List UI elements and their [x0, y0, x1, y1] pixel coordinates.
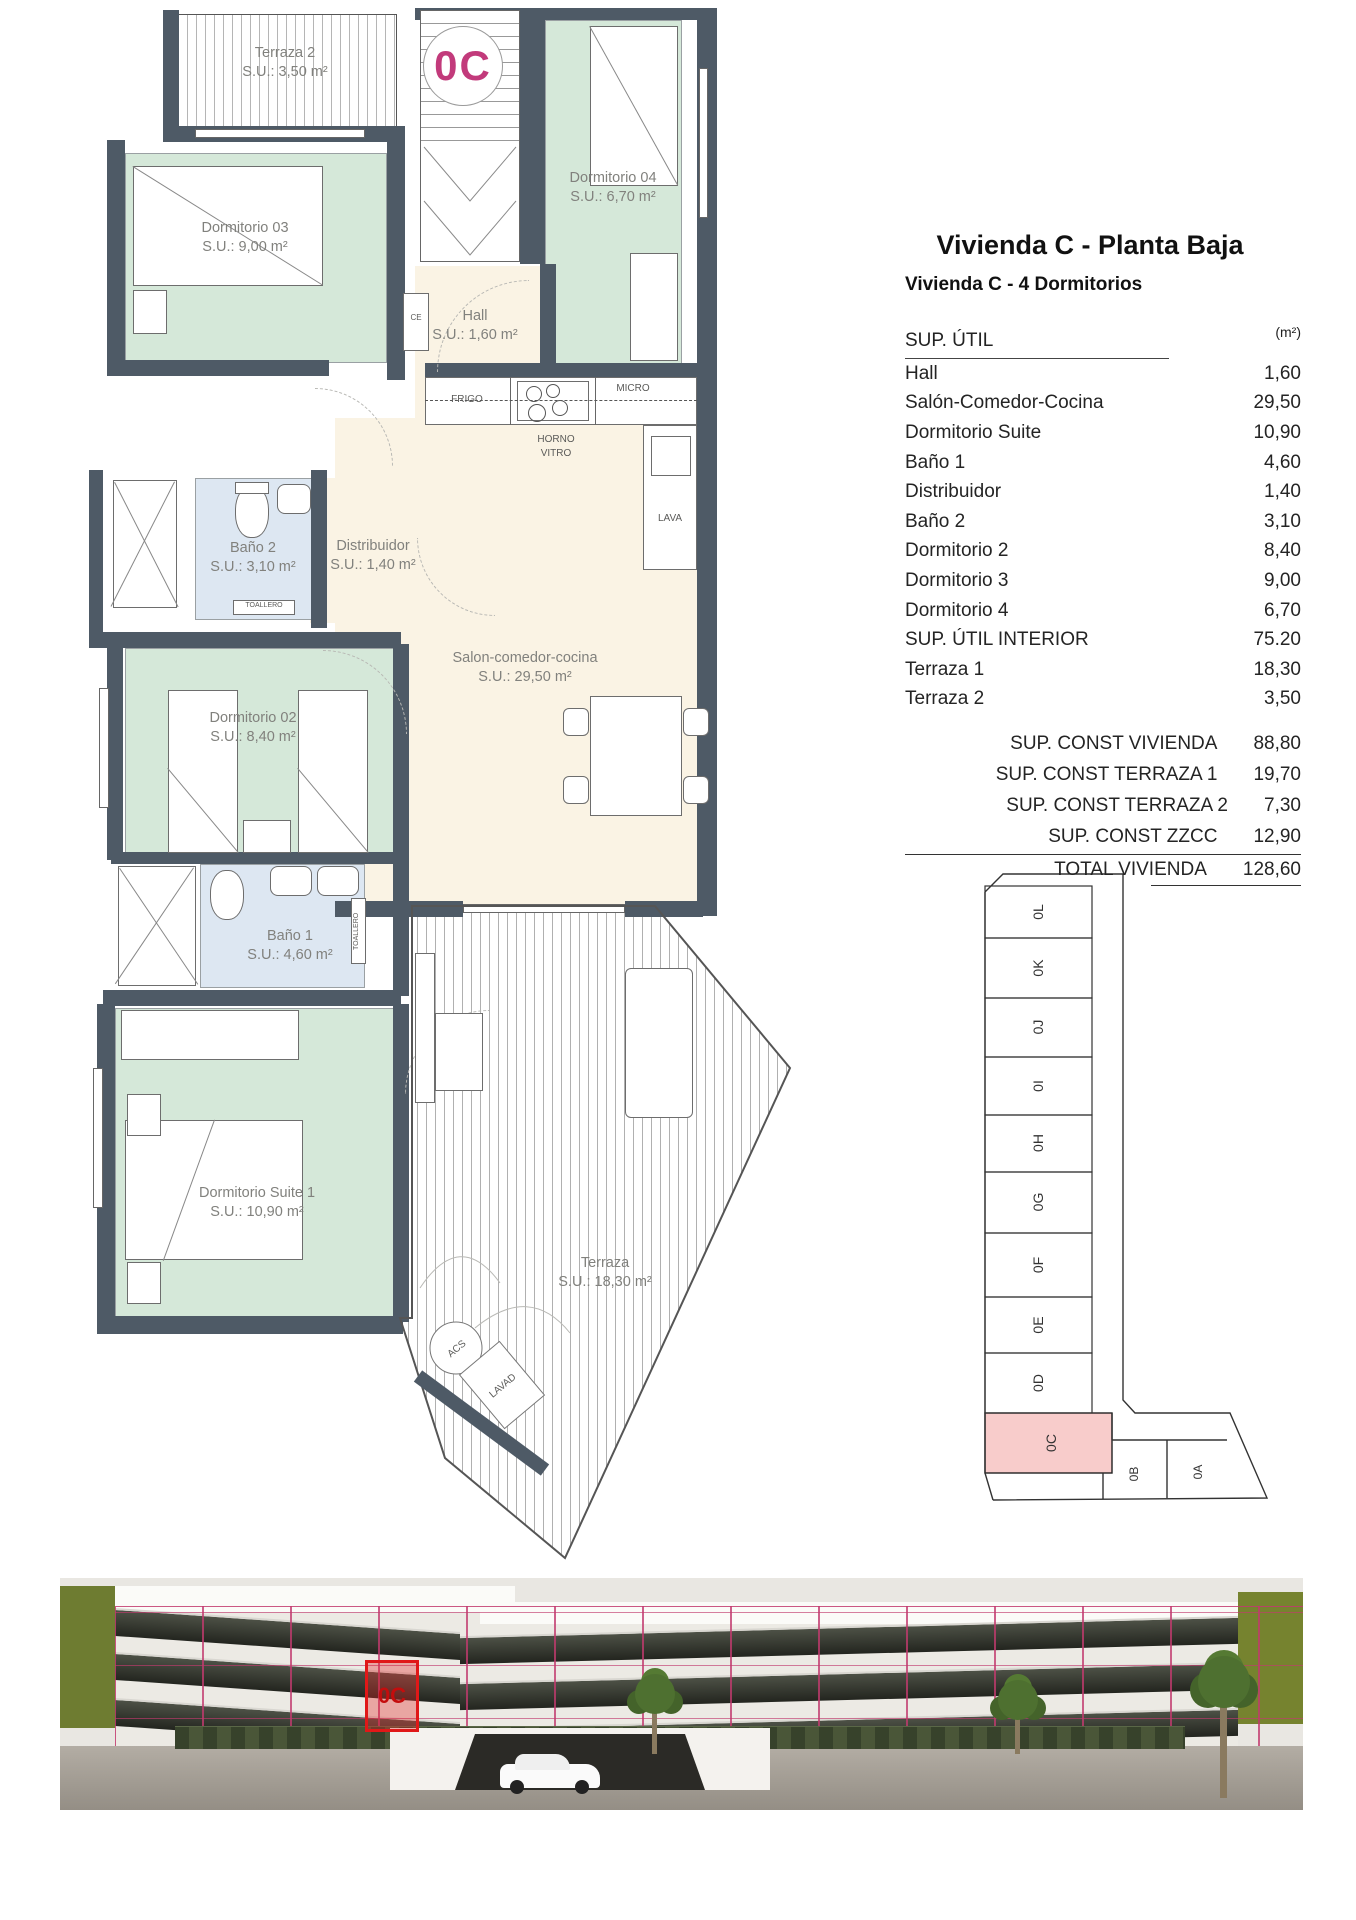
room-name: Dormitorio Suite 1 [199, 1184, 315, 1203]
bed [298, 690, 368, 853]
key-plan-outline [985, 874, 1267, 1500]
room-area: S.U.: 1,40 m² [330, 556, 415, 575]
dining-table [590, 696, 682, 816]
room-label: Hall S.U.: 1,60 m² [432, 307, 517, 345]
wall [163, 10, 179, 136]
page-title: Vivienda C - Planta Baja [880, 230, 1300, 261]
room-area: S.U.: 8,40 m² [209, 728, 296, 747]
room-area: S.U.: 18,30 m² [558, 1273, 651, 1292]
room-label: Terraza S.U.: 18,30 m² [558, 1254, 651, 1292]
summary-row: SUP. CONST TERRAZA 119,70 [905, 759, 1301, 790]
key-plan: 0L 0K 0J 0I 0H 0G 0F 0E 0D 0C 0B 0A [975, 862, 1305, 1522]
chair [683, 708, 709, 736]
row-value: 29,50 [1253, 392, 1301, 414]
room-name: Baño 1 [247, 927, 332, 946]
row-value: 8,40 [1264, 540, 1301, 562]
table-unit: (m²) [1275, 324, 1301, 340]
room-name: Dormitorio 02 [209, 709, 296, 728]
sink [270, 866, 312, 896]
pillow [127, 1094, 161, 1136]
room-name: Terraza 2 [242, 44, 327, 63]
table-row: Dormitorio Suite10,90 [905, 418, 1301, 448]
key-unit-label: 0E [1030, 1316, 1046, 1333]
room-label: Terraza 2 S.U.: 3,50 m² [242, 44, 327, 82]
room-area: S.U.: 4,60 m² [247, 946, 332, 965]
floor-plan: ACS LAVAD [85, 8, 900, 1578]
building-render-photo: 0C [60, 1578, 1303, 1810]
burner [546, 384, 560, 398]
wall [111, 852, 399, 864]
sink [277, 484, 311, 514]
closet-label: CE [403, 313, 429, 322]
key-unit-label: 0I [1030, 1080, 1046, 1092]
row-label: Terraza 1 [905, 659, 984, 681]
table-row: Baño 23,10 [905, 507, 1301, 537]
chair [563, 708, 589, 736]
row-value: 1,60 [1264, 363, 1301, 385]
room-label: Dormitorio 03 S.U.: 9,00 m² [201, 219, 288, 257]
row-value: 3,10 [1264, 511, 1301, 533]
area-table: SUP. ÚTIL (m²) Hall1,60 Salón-Comedor-Co… [905, 330, 1301, 886]
kitchen-divider [595, 377, 596, 425]
room-area: S.U.: 3,50 m² [242, 63, 327, 82]
row-label: Dormitorio 4 [905, 600, 1008, 622]
palm-tree-crown [635, 1674, 675, 1714]
row-value: 18,30 [1253, 659, 1301, 681]
total-value-rule [1151, 885, 1301, 886]
wall [540, 264, 556, 376]
area-table-header: SUP. ÚTIL (m²) [905, 330, 1301, 358]
wardrobe [121, 1010, 299, 1060]
burner [552, 400, 568, 416]
total-label: TOTAL VIVIENDA [1054, 859, 1207, 881]
row-label: Dormitorio Suite [905, 422, 1041, 444]
palm-tree-crown [998, 1680, 1038, 1720]
key-unit-label: 0A [1191, 1465, 1205, 1480]
unit-badge-label: 0C [434, 42, 492, 90]
key-unit-label: 0F [1030, 1257, 1046, 1273]
unit-badge: 0C [423, 26, 503, 106]
key-unit-label: 0G [1030, 1193, 1046, 1212]
row-label: Hall [905, 363, 938, 385]
hall-closet [403, 293, 429, 351]
summary-row: SUP. CONST TERRAZA 27,30 [905, 790, 1301, 821]
highlighted-unit-box: 0C [365, 1660, 419, 1732]
wall [107, 140, 125, 368]
room-area: S.U.: 6,70 m² [569, 188, 656, 207]
page-subtitle: Vivienda C - 4 Dormitorios [905, 274, 1142, 296]
summary-label: SUP. CONST TERRAZA 2 [1006, 795, 1228, 817]
row-label: Salón-Comedor-Cocina [905, 392, 1104, 414]
fridge-label: FRIGO [437, 394, 497, 405]
room-name: Terraza [558, 1254, 651, 1273]
table-row: Hall1,60 [905, 359, 1301, 389]
row-label: Distribuidor [905, 481, 1001, 503]
kitchen-divider [510, 377, 511, 425]
room-name: Dormitorio 04 [569, 169, 656, 188]
key-unit-label: 0B [1127, 1467, 1141, 1482]
room-name: Dormitorio 03 [201, 219, 288, 238]
room-label: Dormitorio Suite 1 S.U.: 10,90 m² [199, 1184, 315, 1222]
table-title: SUP. ÚTIL [905, 330, 993, 351]
nightstand [133, 290, 167, 334]
chair [683, 776, 709, 804]
summary-value: 88,80 [1253, 733, 1301, 755]
door-arc [315, 388, 393, 466]
key-unit-label: 0D [1030, 1374, 1046, 1392]
table-row: Terraza 118,30 [905, 655, 1301, 685]
room-label: Baño 1 S.U.: 4,60 m² [247, 927, 332, 965]
page: ACS LAVAD [0, 0, 1356, 1920]
row-label: Dormitorio 2 [905, 540, 1008, 562]
table-row: Baño 14,60 [905, 448, 1301, 478]
row-value: 75.20 [1253, 629, 1301, 651]
summary-row: SUP. CONST VIVIENDA88,80 [905, 728, 1301, 759]
wall [89, 470, 103, 648]
towel-rail-label: TOALLERO [233, 602, 295, 609]
kitchen-sink [651, 436, 691, 476]
window [93, 1068, 103, 1208]
row-value: 4,60 [1264, 452, 1301, 474]
wall [103, 632, 401, 648]
total-row: TOTAL VIVIENDA 128,60 [905, 855, 1301, 885]
summary-label: SUP. CONST TERRAZA 1 [996, 764, 1218, 786]
room-label: Dormitorio 04 S.U.: 6,70 m² [569, 169, 656, 207]
row-value: 6,70 [1264, 600, 1301, 622]
room-area: S.U.: 29,50 m² [452, 668, 597, 687]
row-label: Dormitorio 3 [905, 570, 1008, 592]
table-row: Dormitorio 39,00 [905, 566, 1301, 596]
key-unit-label: 0L [1030, 904, 1046, 920]
car-wheel [575, 1780, 589, 1794]
key-unit-label: 0H [1030, 1134, 1046, 1152]
terraza-1-outline: ACS LAVAD [300, 898, 810, 1578]
room-name: Salon-comedor-cocina [452, 649, 597, 668]
key-unit-label: 0J [1030, 1020, 1046, 1035]
summary-label: SUP. CONST VIVIENDA [1010, 733, 1217, 755]
window [99, 688, 109, 808]
row-label: Terraza 2 [905, 688, 984, 710]
table-row: Dormitorio 28,40 [905, 537, 1301, 567]
room-area: S.U.: 9,00 m² [201, 238, 288, 257]
room-label: Salon-comedor-cocina S.U.: 29,50 m² [452, 649, 597, 687]
toilet-tank [235, 482, 269, 494]
plant-decoration [420, 1257, 570, 1333]
key-unit-label-highlighted: 0C [1043, 1434, 1059, 1452]
nightstand [243, 820, 291, 853]
summary-label: SUP. CONST ZZCC [1048, 826, 1217, 848]
car-wheel [510, 1780, 524, 1794]
stair-arrow [422, 145, 518, 261]
wall [520, 10, 545, 264]
summary-value: 19,70 [1253, 764, 1301, 786]
room-label: Baño 2 S.U.: 3,10 m² [210, 539, 295, 577]
row-value: 10,90 [1253, 422, 1301, 444]
sink [317, 866, 359, 896]
table-rows: Hall1,60 Salón-Comedor-Cocina29,50 Dormi… [905, 359, 1301, 714]
summary-row: SUP. CONST ZZCC12,90 [905, 821, 1301, 852]
key-unit-label: 0K [1030, 959, 1046, 977]
microwave-label: MICRO [603, 383, 663, 394]
room-area: S.U.: 10,90 m² [199, 1203, 315, 1222]
chair [563, 776, 589, 804]
oven-label: HORNO VITRO [525, 433, 587, 461]
table-row: Salón-Comedor-Cocina29,50 [905, 389, 1301, 419]
wall [311, 470, 327, 628]
row-label: Baño 2 [905, 511, 965, 533]
summary-value: 12,90 [1253, 826, 1301, 848]
dishwasher-label: LAVA [647, 513, 693, 524]
room-area: S.U.: 3,10 m² [210, 558, 295, 577]
row-label: Baño 1 [905, 452, 965, 474]
car-roof [515, 1754, 570, 1770]
row-value: 9,00 [1264, 570, 1301, 592]
wall [107, 648, 123, 860]
row-value: 3,50 [1264, 688, 1301, 710]
burner [528, 404, 546, 422]
room-area: S.U.: 1,60 m² [432, 326, 517, 345]
wall [107, 360, 329, 376]
room-label: Distribuidor S.U.: 1,40 m² [330, 537, 415, 575]
summary-value: 7,30 [1264, 795, 1301, 817]
table-row: Dormitorio 46,70 [905, 596, 1301, 626]
cooktop [517, 381, 589, 421]
row-label: SUP. ÚTIL INTERIOR [905, 629, 1089, 651]
room-name: Baño 2 [210, 539, 295, 558]
room-label: Dormitorio 02 S.U.: 8,40 m² [209, 709, 296, 747]
room-name: Distribuidor [330, 537, 415, 556]
pillow [127, 1262, 161, 1304]
vegetation-left [60, 1586, 118, 1728]
table-summary: SUP. CONST VIVIENDA88,80 SUP. CONST TERR… [905, 728, 1301, 852]
window [195, 129, 365, 138]
table-row: Terraza 23,50 [905, 685, 1301, 715]
window [699, 68, 708, 218]
table-row: Distribuidor1,40 [905, 477, 1301, 507]
row-value: 1,40 [1264, 481, 1301, 503]
room-name: Hall [432, 307, 517, 326]
toilet [210, 870, 244, 920]
highlighted-unit-label: 0C [378, 1683, 406, 1709]
wardrobe [630, 253, 678, 361]
total-value: 128,60 [1243, 859, 1301, 881]
table-row: SUP. ÚTIL INTERIOR75.20 [905, 625, 1301, 655]
palm-tree-crown [1198, 1656, 1250, 1708]
